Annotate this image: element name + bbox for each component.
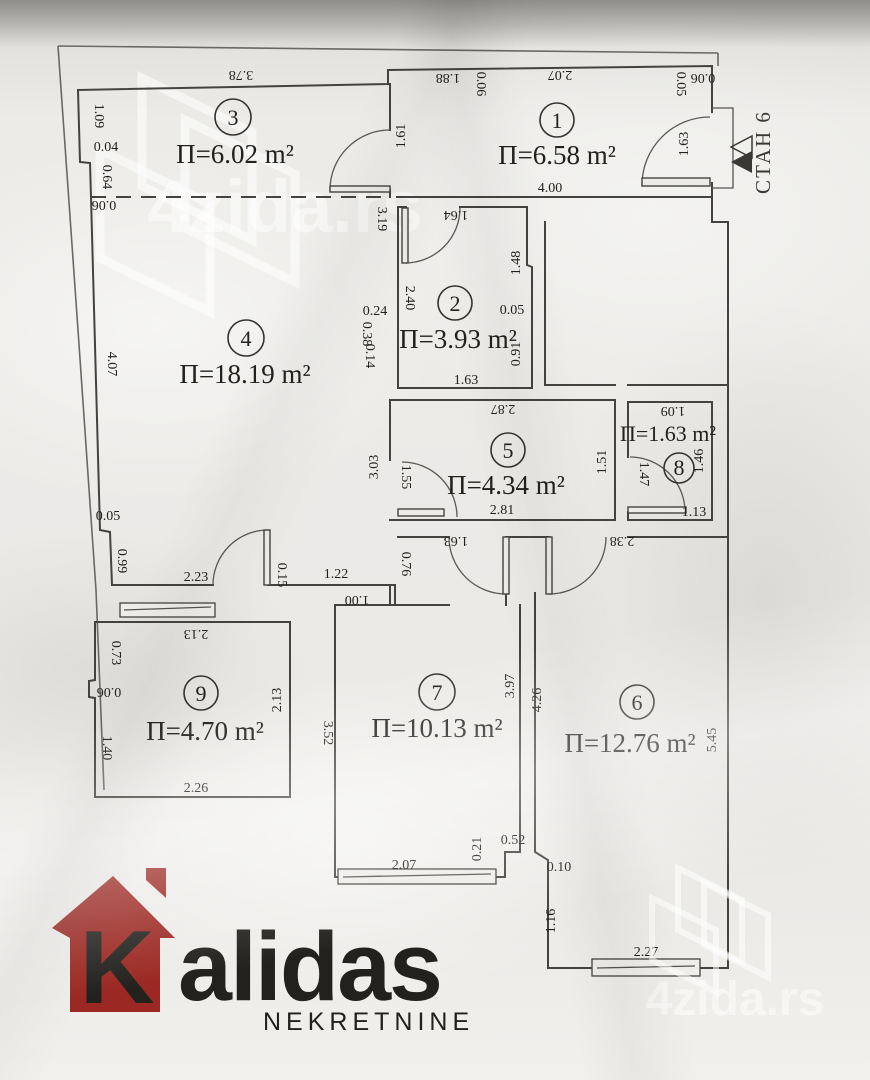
room-number: 5 (503, 438, 514, 463)
brand-subtitle: NEKRETNINE (263, 1008, 474, 1036)
dimension-label: 0.21 (470, 837, 485, 862)
watermark-bottom-right: 4zida.rs (646, 868, 825, 1026)
entrance-marker: СТАН 6 (731, 110, 775, 194)
house-icon: K (52, 868, 175, 1026)
door-room4 (213, 530, 270, 585)
dimension-label: 0.52 (501, 833, 526, 848)
dimension-label: 2.87 (491, 401, 516, 416)
room-area-label: П=4.70 m² (146, 716, 264, 746)
dimension-label: 0.05 (500, 303, 525, 318)
dimension-label: 1.61 (394, 124, 409, 149)
room-number: 2 (450, 291, 461, 316)
dimension-label: 1.88 (436, 70, 461, 85)
dimension-label: 1.64 (444, 207, 469, 222)
dimension-label: 0.76 (398, 552, 413, 577)
room-number: 3 (228, 105, 239, 130)
dimension-label: 3.03 (367, 455, 382, 480)
brand-initial: K (79, 910, 154, 1026)
room-number: 9 (196, 681, 207, 706)
dimension-label: 0.64 (99, 165, 114, 190)
room-badge: 7 П=10.13 m² (371, 674, 502, 743)
dimension-label: 0.99 (114, 549, 129, 574)
room-area-label: П=4.34 m² (447, 470, 565, 500)
dimension-label: 2.26 (184, 781, 209, 796)
dimension-label: 2.07 (548, 67, 573, 82)
dimension-label: 4.00 (538, 181, 563, 196)
dimension-label: 0.06 (691, 70, 716, 85)
room-area-label: П=1.63 m² (620, 421, 716, 446)
dimension-label: 3.97 (503, 674, 518, 699)
room-area-label: П=12.76 m² (564, 728, 695, 758)
room-badge: 6 П=12.76 m² (564, 685, 695, 758)
dimension-label: 2.23 (184, 570, 209, 585)
dimension-label: 2.13 (184, 626, 209, 641)
room-badge: 9 П=4.70 m² (146, 676, 264, 746)
apartment-label: СТАН 6 (751, 110, 775, 194)
dimension-label: 0.10 (547, 860, 572, 875)
dimension-label: 0.06 (97, 684, 122, 699)
dimension-label: 0.06 (92, 197, 117, 212)
room-badge: 5 П=4.34 m² (447, 433, 565, 500)
window-room9-top (120, 603, 215, 617)
dimension-label: 1.09 (661, 403, 686, 418)
dimension-label: 1.22 (324, 567, 349, 582)
scanned-floor-plan-paper: 4zida.rs (0, 0, 870, 1080)
dimension-label: 1.55 (398, 465, 413, 490)
dimension-label: 0.24 (363, 304, 388, 319)
dimension-label: 1.40 (99, 736, 114, 761)
room-area-label: П=6.58 m² (498, 140, 616, 170)
dimension-label: 0.05 (673, 72, 688, 97)
dimension-label: 1.47 (636, 462, 651, 487)
room-number: 6 (632, 690, 643, 715)
dimension-label: 0.06 (473, 72, 488, 97)
dimension-label: 0.91 (509, 342, 524, 367)
dimension-label: 2.13 (270, 688, 285, 713)
dimension-label: 0.73 (108, 641, 123, 666)
dimension-label: 1.09 (91, 104, 106, 129)
door-hall-room6 (546, 537, 606, 594)
dimension-label: 0.15 (274, 563, 289, 588)
dimension-label: 4.26 (530, 688, 545, 713)
room-number: 8 (674, 455, 685, 480)
outer-contour (58, 46, 718, 790)
room-area-label: П=3.93 m² (399, 324, 517, 354)
dimension-label: 1.00 (345, 592, 370, 607)
dimension-label: 1.46 (692, 449, 707, 474)
dimension-label: 0.38 (359, 322, 374, 347)
dimension-label: 0.04 (94, 140, 119, 155)
dimension-label: 1.16 (544, 909, 559, 934)
dimension-label: 3.52 (320, 721, 335, 746)
dimension-label: 1.48 (509, 251, 524, 276)
dimension-label: 3.78 (229, 67, 254, 82)
dimension-label: 2.81 (490, 503, 515, 518)
dimension-label: 1.13 (682, 505, 707, 520)
dimension-label: 1.63 (454, 373, 479, 388)
entrance-door (642, 117, 710, 186)
room-number: 1 (552, 108, 563, 133)
room-area-label: П=6.02 m² (176, 139, 294, 169)
room-badge: 4 П=18.19 m² (179, 320, 310, 389)
dimension-label: 2.38 (610, 533, 635, 548)
room-area-label: П=10.13 m² (371, 713, 502, 743)
room-number: 4 (241, 326, 252, 351)
dimension-label: 4.07 (104, 352, 119, 377)
brand-name: alidas (178, 912, 441, 1021)
dimension-label: 0.14 (362, 344, 377, 369)
room-number: 7 (432, 680, 443, 705)
dimension-label: 1.63 (677, 132, 692, 157)
room-badge: 3 П=6.02 m² (176, 99, 294, 169)
dimension-label: 1.63 (444, 533, 469, 548)
dimension-label: 2.07 (392, 858, 417, 873)
dimension-label: 3.19 (374, 207, 389, 232)
watermark-top-left: 4zida.rs (100, 78, 423, 312)
floor-plan-drawing: 4zida.rs (0, 0, 870, 1080)
brand-logo: K alidas NEKRETNINE (52, 868, 474, 1036)
entrance-arrow-icon (731, 151, 752, 173)
window-room7-bottom (338, 869, 496, 884)
dimension-label: 1.51 (595, 450, 610, 475)
room-area-label: П=18.19 m² (179, 359, 310, 389)
dimension-label: 5.45 (705, 728, 720, 753)
dimension-label: 2.40 (402, 286, 417, 311)
room-badge: 1 П=6.58 m² (498, 103, 616, 170)
watermark-text: 4zida.rs (646, 973, 825, 1026)
dimension-label: 0.05 (96, 509, 121, 524)
